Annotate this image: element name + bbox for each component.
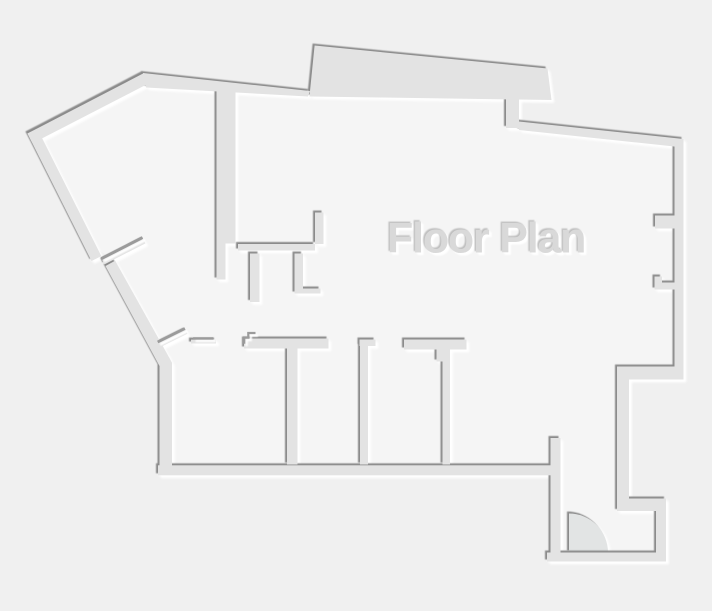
svg-text:Floor Plan: Floor Plan [387, 215, 585, 263]
